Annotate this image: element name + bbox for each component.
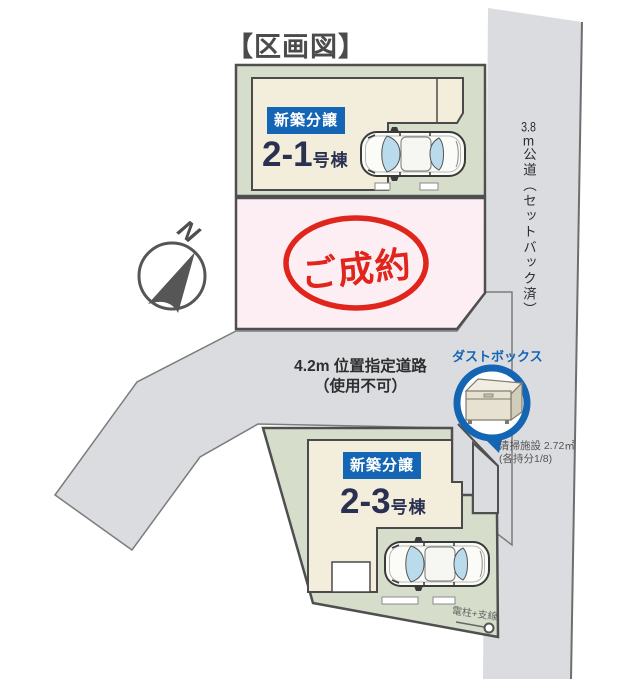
lot-2-1-number-text: 2-1	[262, 135, 313, 174]
car-icon	[385, 537, 489, 591]
plot-map-drawing	[0, 0, 641, 679]
front-road-label-line1: 4.2m 位置指定道路	[268, 357, 453, 377]
lot-2-3-badge: 新築分譲	[343, 452, 421, 479]
front-road-label: 4.2m 位置指定道路 （使用不可）	[268, 357, 453, 397]
utility-pole-icon	[485, 624, 494, 633]
lot-2-1-number: 2-1号棟	[262, 137, 349, 178]
front-road-label-line2: （使用不可）	[268, 377, 453, 397]
east-road-name: 公道（セットバック済）	[521, 147, 536, 318]
parking-marker	[382, 597, 418, 604]
east-road-unit: m	[521, 134, 536, 148]
car-icon	[361, 127, 465, 181]
lot-2-1-suffix: 号棟	[313, 151, 349, 170]
building-2-3-notch	[332, 562, 370, 592]
east-road-label: 3.8m公道（セットバック済）	[520, 120, 536, 350]
facility-note-line1: 清掃施設 2.72㎡	[499, 440, 575, 453]
facility-note-line2: (各持分1/8)	[499, 453, 575, 466]
parking-marker	[433, 597, 455, 604]
lot-2-3-number-text: 2-3	[340, 482, 391, 521]
facility-note: 清掃施設 2.72㎡ (各持分1/8)	[499, 440, 575, 466]
compass-icon	[139, 243, 205, 313]
page-title: 【区画図】	[226, 25, 366, 64]
lot-2-1-badge: 新築分譲	[267, 107, 345, 134]
dustbox-icon	[466, 379, 522, 424]
parking-marker	[420, 183, 438, 190]
dustbox-label: ダストボックス	[452, 346, 543, 365]
east-road-size: 3.8	[521, 120, 536, 134]
parking-marker	[375, 183, 390, 190]
plot-map: 【区画図】 N 3.8m公道（セットバック済） 4.2m 位置指定道路 （使用不…	[0, 0, 641, 679]
lot-2-3-number: 2-3号棟	[340, 484, 427, 525]
lot-2-3-suffix: 号棟	[391, 498, 427, 517]
